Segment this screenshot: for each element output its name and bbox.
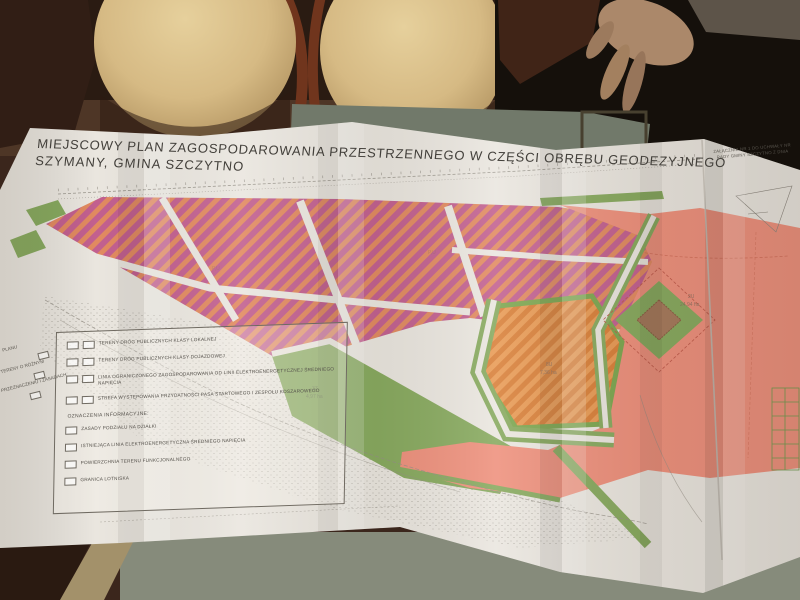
- legend-swatch: [82, 395, 94, 403]
- legend-label: TERENY DRÓG PUBLICZNYCH KLASY DOJAZDOWEJ: [98, 349, 338, 363]
- legend-label: ISTNIEJĄCA LINIA ELEKTROENERGETYCZNA ŚRE…: [81, 434, 337, 449]
- legend-label: POWIERZCHNIA TERENU FUNKCJONALNEGO: [81, 451, 337, 466]
- cream-chair-left: [94, 0, 302, 140]
- legend-swatch: [82, 375, 94, 383]
- photo-of-zoning-plan: 8U 7,36 ha 2U 24,94 ha 3Z 4,97 ha P,U P,…: [0, 0, 800, 600]
- legend-swatch: [66, 375, 78, 383]
- legend-row: GRANICA LOTNISKA: [64, 468, 336, 486]
- legend-swatch: [83, 341, 95, 349]
- map-legend: TERENY DRÓG PUBLICZNYCH KLASY LOKALNEJ T…: [53, 322, 348, 514]
- legend-row: LINIA OGRANICZONEGO ZAGOSPODAROWANIA OD …: [66, 366, 338, 387]
- legend-label: GRANICA LOTNISKA: [80, 468, 336, 483]
- legend-swatch: [65, 426, 77, 434]
- legend-swatch: [65, 460, 77, 468]
- legend-label: STREFA WYSTĘPOWANIA PRZYDATNOŚCI PASA ST…: [98, 387, 338, 401]
- legend-swatch: [65, 443, 77, 451]
- legend-label: LINIA OGRANICZONEGO ZAGOSPODAROWANIA OD …: [98, 366, 338, 386]
- legend-row: POWIERZCHNIA TERENU FUNKCJONALNEGO: [65, 451, 337, 469]
- legend-info-heading: OZNACZENIA INFORMACYJNE:: [67, 404, 337, 419]
- legend-label: ZASADY PODZIAŁU NA DZIAŁKI: [81, 417, 337, 432]
- legend-label: TERENY DRÓG PUBLICZNYCH KLASY LOKALNEJ: [99, 332, 339, 346]
- legend-swatch: [64, 477, 76, 485]
- legend-swatch: [82, 358, 94, 366]
- legend-row: TERENY DRÓG PUBLICZNYCH KLASY DOJAZDOWEJ: [66, 349, 338, 367]
- legend-swatch: [67, 341, 79, 349]
- legend-swatch: [66, 396, 78, 404]
- legend-row: ISTNIEJĄCA LINIA ELEKTROENERGETYCZNA ŚRE…: [65, 434, 337, 452]
- legend-row: STREFA WYSTĘPOWANIA PRZYDATNOŚCI PASA ST…: [66, 387, 338, 405]
- legend-row: TERENY DRÓG PUBLICZNYCH KLASY LOKALNEJ: [67, 332, 339, 350]
- legend-row: ZASADY PODZIAŁU NA DZIAŁKI: [65, 417, 337, 435]
- legend-swatch: [66, 358, 78, 366]
